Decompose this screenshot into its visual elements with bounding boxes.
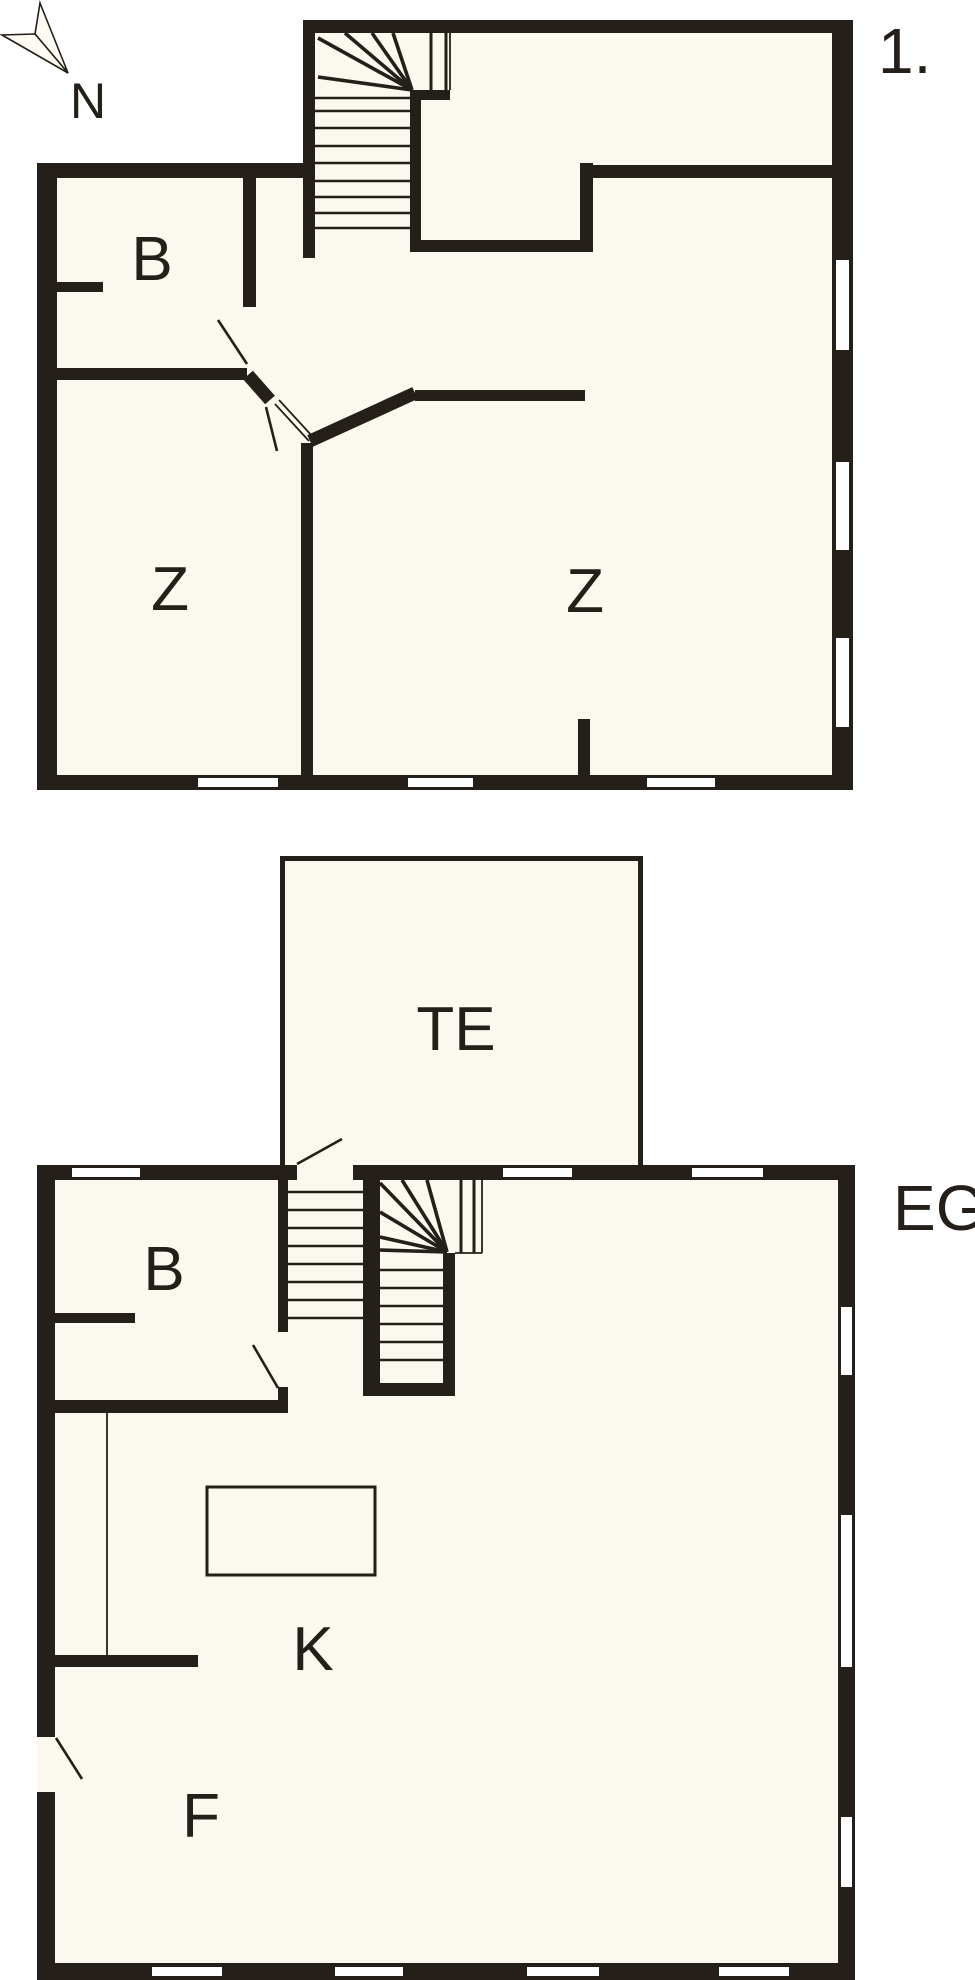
window [335,1967,403,1976]
wall [37,163,303,178]
window [841,1817,852,1887]
floor-label-ground: EG [893,1172,975,1244]
room-label-hall: F [182,1782,220,1851]
window [719,1967,789,1976]
wall-topright-room-bottom [580,165,832,178]
wall-bath-stub [55,1313,135,1323]
window [503,1168,572,1177]
wall-stairwell-left [303,33,315,258]
wall [37,1165,55,1980]
wall [280,856,285,1165]
room-label-kitchen: K [292,1615,333,1684]
room-label-bedroom-left: Z [151,555,189,624]
wall-stair-bottom [410,240,593,252]
window [72,1168,140,1177]
ground-floor-plan: EG TE B K F [37,856,975,1980]
floorplan-drawing: N [0,0,975,1980]
wall-bath-right [243,178,256,307]
wall [280,856,643,861]
wall [638,856,643,1165]
wall-stairwell-right [410,90,421,252]
compass: N [2,3,106,129]
wall-bottom-stub [578,719,590,775]
wall-stair-right [443,1253,455,1396]
wall [303,20,853,33]
window [836,638,849,727]
room-label-bath-ground: B [143,1235,184,1304]
wall-mid-horizontal [415,390,585,401]
floorplan-page: N [0,0,975,1980]
room-label-terrace: TE [416,995,495,1064]
wall [37,163,57,790]
window [836,260,849,350]
window [647,778,715,787]
window [841,1515,852,1667]
room-label-bath-upper: B [131,225,172,294]
wall-bath-bottom [55,1400,288,1413]
wall-stair-bottom [363,1383,455,1396]
window [692,1168,763,1177]
side-door-gap [37,1737,55,1792]
floor-label-upper: 1. [878,15,931,87]
wall-stair-top-stub [410,90,450,100]
wall-hall-stub [55,1655,198,1667]
window [836,462,849,550]
wall-bath-bottom [57,368,247,380]
wall-stair-middle [363,1180,380,1396]
window [408,778,473,787]
wall-bath-stub [57,282,103,292]
wall-bedroom-divider [301,443,313,775]
upper-floor-plan: 1. B Z Z [37,15,931,790]
window [152,1967,222,1976]
room-label-bedroom-right: Z [566,557,604,626]
wall-bath-right [278,1180,288,1332]
window [841,1307,852,1375]
kitchen-island [207,1487,375,1575]
window [527,1967,599,1976]
window [198,778,278,787]
compass-label: N [70,73,106,129]
entry-door-gap [297,1165,353,1180]
